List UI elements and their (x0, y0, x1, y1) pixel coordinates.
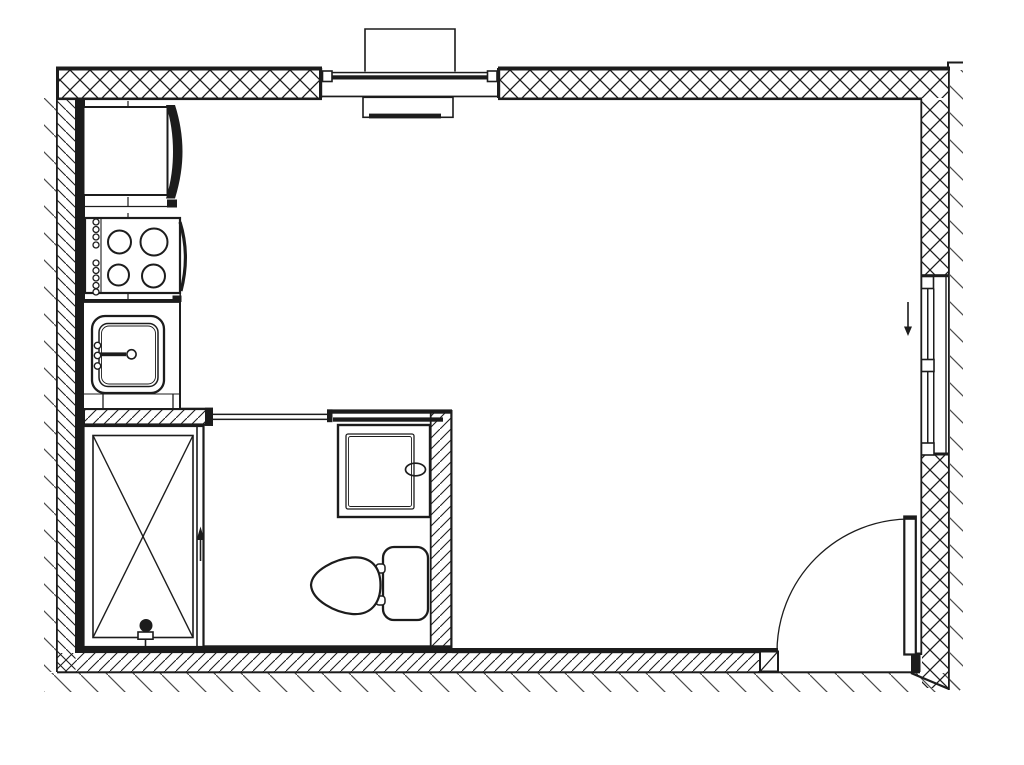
left-ticks (44, 98, 57, 672)
down-arrow (904, 302, 912, 336)
window-stop-right (488, 71, 498, 82)
right-window (904, 276, 947, 455)
bathroom-right-wall (432, 410, 451, 650)
toilet (311, 547, 428, 620)
sash-lower (927, 372, 929, 444)
bottom-ticks (44, 673, 960, 692)
kitchen-strip (83, 101, 185, 409)
entry-door (760, 516, 921, 672)
toilet-tank (383, 547, 428, 620)
floor-plan-canvas (0, 0, 1024, 765)
toilet-bowl (311, 557, 381, 614)
threshold-line (57, 671, 920, 673)
faucet-head (127, 350, 136, 359)
wall-left-end-cap (56, 67, 59, 100)
refrigerator (84, 105, 183, 208)
door-swing-arc (777, 519, 910, 652)
right-ticks (950, 70, 963, 690)
shower-drain (140, 619, 153, 632)
top-window (319, 29, 500, 118)
wall-corner-notch (948, 63, 963, 71)
exterior-wall-top (56, 63, 963, 101)
window-bay-box (365, 29, 455, 72)
sliding-door-track (213, 414, 327, 416)
exterior-wall-left (56, 98, 85, 672)
door-leaf (904, 517, 916, 655)
cabinet-knob (406, 463, 426, 476)
sink-handles (94, 342, 100, 369)
burner (108, 265, 129, 286)
kitchen-sink (83, 300, 180, 410)
stove (85, 218, 185, 302)
washbasin-cabinet (338, 425, 430, 517)
burner (141, 229, 168, 256)
burner (142, 265, 165, 288)
partition-end-cap (205, 408, 213, 426)
floor-plan-drawing (0, 0, 1024, 765)
exterior-wall-bottom (57, 645, 920, 673)
window-glazing-line (331, 75, 488, 79)
shower-tray (84, 426, 205, 647)
sash-upper (927, 289, 929, 360)
window-stop-left (323, 71, 333, 82)
burner (108, 231, 131, 254)
